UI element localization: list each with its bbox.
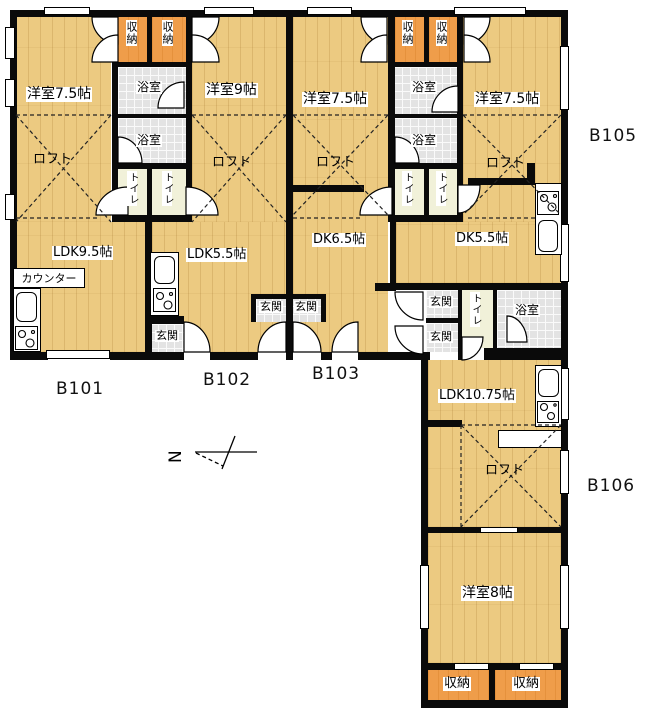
wall: [493, 288, 497, 352]
wall-wing-west: [421, 352, 428, 708]
label-toilet: トイレ: [127, 171, 137, 206]
stove-b102: [153, 288, 176, 312]
wall: [147, 169, 152, 215]
label-entry: 玄関: [259, 301, 283, 313]
kitchen-sink-b106: [538, 369, 559, 397]
wall: [321, 294, 326, 322]
wall: [150, 316, 184, 324]
unit-label-b105: B105: [589, 126, 637, 146]
kitchen-sink-b105: [538, 220, 558, 252]
wall-b106-ldk-loft: [421, 420, 462, 427]
label-ldk-b106: LDK10.75帖: [438, 389, 516, 403]
window: [204, 7, 254, 15]
wall: [426, 318, 458, 323]
label-closet: 収納: [402, 20, 413, 46]
counter-box: カウンター: [13, 268, 85, 288]
wall: [186, 16, 192, 222]
label-bath: 浴室: [136, 81, 162, 94]
wall-b106-closet-top: [428, 663, 454, 670]
wall-bottom: [286, 352, 293, 360]
room-b102-bedroom-floor: [192, 16, 286, 222]
bath-b106: [497, 290, 561, 348]
counter-label: カウンター: [22, 270, 77, 286]
stove-b106: [537, 401, 559, 423]
unit-label-b103: B103: [312, 364, 360, 384]
kitchen-sink-b101: [16, 292, 37, 322]
floor-plan: カウンター: [0, 0, 650, 708]
label-loft-b106: ロフト: [484, 464, 525, 478]
label-entry: 玄関: [429, 296, 453, 308]
wall: [390, 222, 396, 283]
label-toilet: トイレ: [436, 171, 446, 206]
stove-b101: [15, 326, 38, 350]
wall-b103-divider: [292, 185, 364, 192]
wall-bottom: [358, 352, 430, 360]
wall: [388, 215, 463, 222]
wall: [457, 16, 463, 222]
wall-b106-loft-bottom: [428, 527, 480, 533]
wall-dk55-bottom: [390, 283, 562, 290]
wall: [112, 163, 192, 169]
wall: [388, 62, 463, 67]
unit-label-b101: B101: [56, 379, 104, 399]
label-entry: 玄関: [429, 331, 453, 343]
wall-bottom: [210, 352, 258, 360]
label-bedroom-b103: 洋室7.5帖: [302, 92, 368, 107]
label-toilet: トイレ: [402, 171, 412, 206]
label-ldk-b102: LDK5.5帖: [186, 248, 247, 262]
label-bath: 浴室: [411, 134, 437, 147]
unit-label-b106: B106: [587, 476, 635, 496]
room-b101-bedroom-floor: [16, 16, 111, 222]
wall: [112, 114, 192, 118]
loft-counter-b106: [498, 430, 562, 448]
wall: [489, 670, 495, 700]
wall: [251, 294, 326, 299]
window: [560, 565, 569, 629]
label-bedroom-b106: 洋室8帖: [461, 586, 514, 601]
stove-b105: [537, 191, 559, 215]
kitchen-sink-b102: [154, 256, 175, 284]
label-closet: 収納: [126, 20, 137, 46]
label-bedroom-b105: 洋室7.5帖: [474, 92, 540, 107]
label-closet: 収納: [436, 20, 447, 46]
wall-b102-b103: [286, 10, 293, 352]
wall: [112, 62, 192, 67]
window: [44, 7, 90, 15]
label-entry: 玄関: [294, 301, 318, 313]
label-entry: 玄関: [155, 330, 179, 342]
north-letter: N: [166, 450, 186, 463]
wall: [458, 288, 462, 352]
wall: [527, 163, 535, 185]
label-loft-b105: ロフト: [485, 157, 526, 171]
window: [5, 194, 15, 220]
label-bath: 浴室: [514, 304, 540, 317]
label-bath: 浴室: [411, 81, 437, 94]
label-toilet: トイレ: [470, 292, 480, 327]
sliding-door: [519, 663, 554, 670]
wall-b106-top: [484, 348, 562, 360]
label-loft-b101: ロフト: [32, 153, 73, 167]
label-loft-b103: ロフト: [315, 156, 356, 170]
window: [420, 565, 429, 629]
label-loft-b102: ロフト: [211, 156, 252, 170]
north-arrow: N: [166, 436, 257, 469]
unit-label-b102: B102: [203, 370, 251, 390]
wall-b106-closet-top: [554, 663, 562, 670]
window: [5, 27, 15, 59]
window: [560, 450, 569, 494]
wall: [388, 16, 395, 222]
label-dk-b105: DK5.5帖: [455, 232, 509, 246]
window: [454, 7, 526, 15]
label-dk-b103: DK6.5帖: [312, 233, 366, 247]
label-closet: 収納: [162, 20, 173, 46]
wall-wing-bottom: [421, 700, 568, 708]
window: [46, 350, 110, 359]
wall-b106-closet-top: [489, 663, 519, 670]
sliding-door: [480, 527, 518, 533]
label-closet: 収納: [443, 677, 471, 691]
wall: [147, 16, 152, 62]
label-toilet: トイレ: [162, 171, 172, 206]
wall: [424, 169, 429, 215]
label-bedroom-b101: 洋室7.5帖: [26, 87, 92, 102]
wall-bottom: [321, 352, 332, 360]
wall: [388, 114, 463, 118]
label-bath: 浴室: [136, 134, 162, 147]
window: [5, 79, 15, 107]
label-closet: 収納: [512, 677, 540, 691]
wall: [424, 16, 429, 62]
label-bedroom-b102: 洋室9帖: [205, 83, 258, 98]
sliding-door: [454, 663, 489, 670]
wall: [112, 215, 192, 222]
wall: [251, 294, 256, 322]
wall: [458, 348, 462, 360]
label-ldk-b101: LDK9.5帖: [52, 246, 113, 260]
window: [560, 46, 569, 110]
wall-bottom: [10, 352, 48, 360]
window: [307, 7, 352, 15]
wall-b106-loft-bottom: [518, 527, 562, 533]
wall-bottom: [110, 352, 184, 360]
wall-b105-divider: [468, 178, 530, 185]
wall: [112, 16, 118, 222]
